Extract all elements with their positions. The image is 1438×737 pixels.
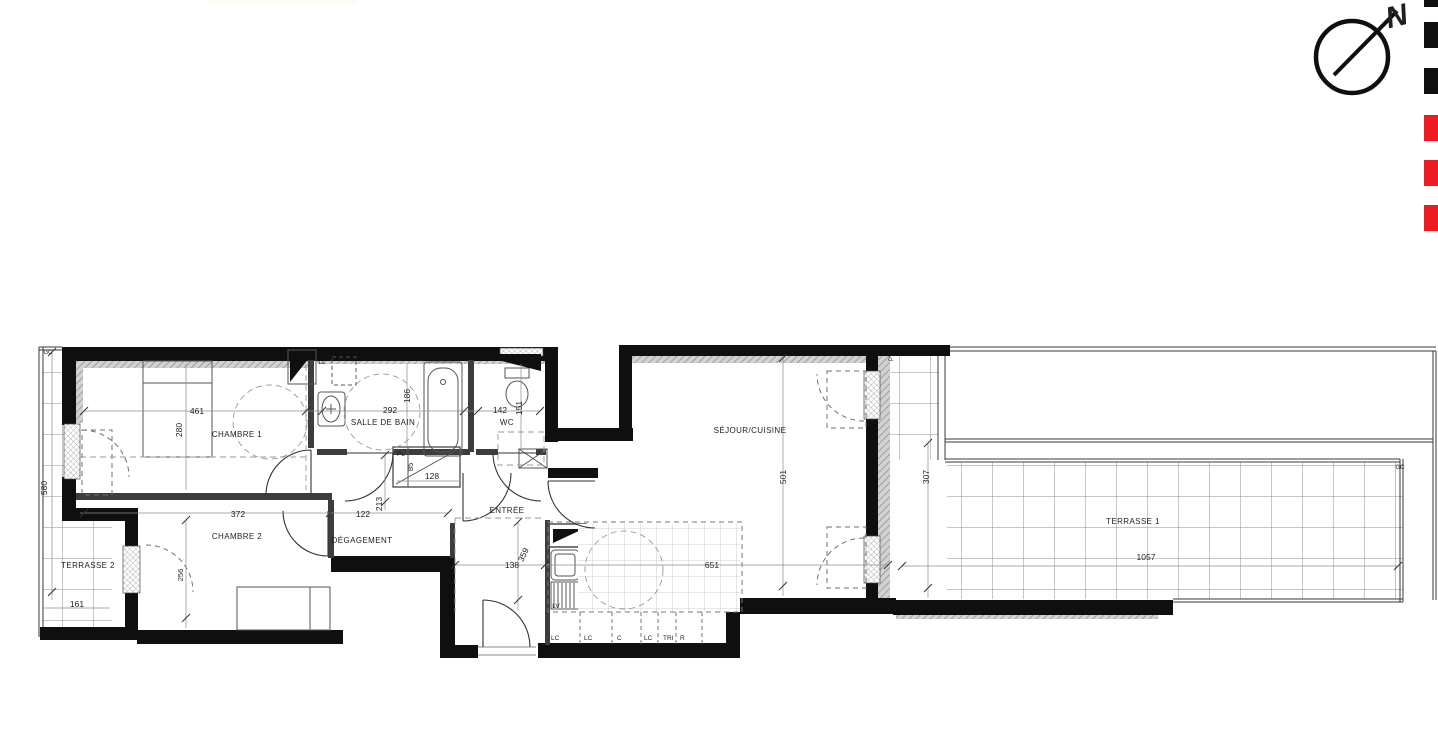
dim-138: 138 (505, 560, 519, 570)
room-label-chambre-2: CHAMBRE 2 (212, 532, 262, 541)
cabinet-label-cab-lc-3: LC (644, 635, 653, 642)
room-label-terrasse-2: TERRASSE 2 (61, 561, 115, 570)
dim-213: 213 (374, 497, 384, 511)
door-wc (493, 453, 541, 501)
dim-186: 186 (402, 389, 412, 403)
dim-372: 372 (231, 509, 245, 519)
dim-292: 292 (383, 405, 397, 415)
dim-142: 142 (493, 405, 507, 415)
door-chambre2 (283, 511, 328, 556)
dim-256: 256 (176, 569, 185, 582)
cabinet-label-cab-lc-2: LC (584, 635, 593, 642)
room-label-wc: WC (500, 418, 514, 427)
dim-85: 85 (406, 463, 415, 471)
interior-partitions (76, 360, 550, 645)
swing-terrasse2-chambre1 (82, 430, 129, 477)
brand-square-1 (1424, 0, 1438, 7)
room-label-sejour-cuisine: SÉJOUR/CUISINE (714, 426, 787, 435)
bathtub (424, 362, 462, 456)
brand-square-2 (1424, 22, 1438, 48)
dim-122: 122 (356, 509, 370, 519)
door-sejour (548, 481, 595, 528)
brand-square-5 (1424, 160, 1438, 186)
entry-threshold (478, 647, 536, 655)
room-label-entree: ENTRÉE (490, 506, 525, 515)
dim-307: 307 (921, 470, 931, 484)
annotation-gc-terrasse1: GC (1396, 465, 1406, 471)
brand-square-3 (1424, 68, 1438, 94)
dim-128: 128 (425, 471, 439, 481)
room-label-chambre-1: CHAMBRE 1 (212, 430, 262, 439)
dim-280: 280 (174, 423, 184, 437)
door-salle-de-bain (345, 453, 393, 501)
cabinet-label-cab-tri: TRI (663, 635, 674, 642)
window-chambre1 (64, 424, 80, 479)
compass-north-label: N (1382, 0, 1412, 35)
brand-square-6 (1424, 205, 1438, 231)
swing-sejour-north (817, 374, 864, 421)
turning-circle-chambre1 (233, 385, 307, 459)
brand-square-4 (1424, 115, 1438, 141)
annotation-lv: LV (552, 603, 560, 610)
guides (80, 365, 663, 612)
annotation-pv: PV (889, 353, 895, 361)
room-label-salle-de-bain: SALLE DE BAIN (351, 418, 415, 427)
compass: N (1316, 0, 1412, 93)
cabinet-label-cab-lc-1: LC (551, 635, 560, 642)
dim-461: 461 (190, 406, 204, 416)
brand-squares (1424, 0, 1438, 231)
floor-plan-drawing: N CHAMBRE 1SALLE DE BAINWCCHAMBRE 2DÉGAG… (0, 0, 1438, 737)
room-label-degagement: DÉGAGEMENT (332, 536, 393, 545)
dim-501: 501 (778, 470, 788, 484)
bed-chambre2 (237, 587, 330, 630)
top-cropped-strip (209, 0, 357, 5)
annotation-gc-terrasse2: GC (44, 350, 54, 356)
dim-1057: 1057 (1137, 552, 1156, 562)
bathroom-sink (318, 392, 345, 426)
cabinet-label-cab-r: R (680, 635, 685, 642)
dim-161: 161 (70, 599, 84, 609)
swing-sejour-south (817, 538, 864, 585)
door-entry (483, 600, 530, 647)
dim-580: 580 (39, 481, 49, 495)
dim-651: 651 (705, 560, 719, 570)
dim-151: 151 (514, 401, 524, 415)
window-chambre2 (123, 546, 140, 593)
annotation-pl: PL (397, 451, 405, 458)
floor-plan-page: N CHAMBRE 1SALLE DE BAINWCCHAMBRE 2DÉGAG… (0, 0, 1438, 737)
annotation-ll: LL (318, 359, 326, 366)
room-label-terrasse-1: TERRASSE 1 (1106, 517, 1160, 526)
cabinet-label-cab-c: C (617, 635, 622, 642)
